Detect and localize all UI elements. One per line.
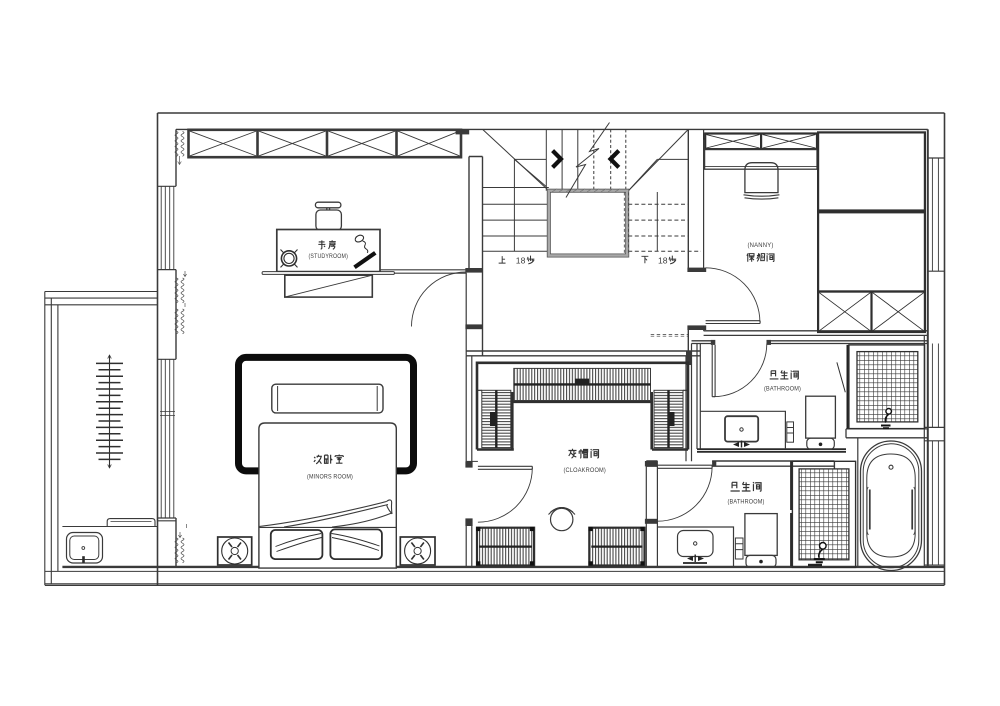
svg-text:(BATHROOM): (BATHROOM) [764,385,801,392]
svg-text:18: 18 [516,255,526,265]
svg-text:(BATHROOM): (BATHROOM) [728,499,765,506]
svg-text:(STUDYROOM): (STUDYROOM) [309,253,349,260]
svg-text:(CLOAKROOM): (CLOAKROOM) [564,467,607,474]
svg-text:(NANNY): (NANNY) [748,242,774,249]
svg-text:(MINORS ROOM): (MINORS ROOM) [307,473,353,480]
svg-text:18: 18 [658,255,668,265]
